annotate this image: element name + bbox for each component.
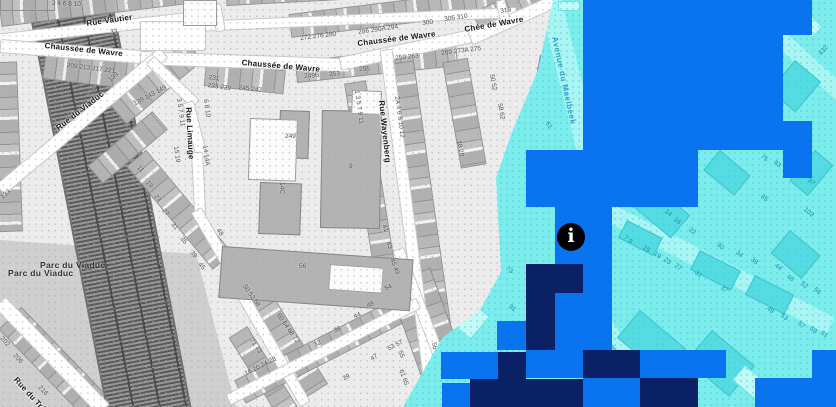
flood-risk-tile-very-high [526, 293, 555, 350]
flood-risk-tile-high [583, 378, 640, 407]
flood-risk-tile-high [755, 378, 836, 407]
map-canvas[interactable]: Rue VautierChaussée de WavreChaussée de … [0, 0, 836, 407]
flood-risk-tile-very-high [470, 379, 583, 407]
flood-risk-tile-high [783, 121, 812, 178]
flood-risk-tile-high [583, 35, 783, 150]
flood-risk-tile-high [526, 350, 583, 378]
flood-risk-tile-high [812, 350, 836, 378]
flood-risk-tile-high [441, 352, 498, 379]
info-icon: i [567, 227, 574, 246]
flood-risk-tile-high [555, 293, 612, 321]
flood-risk-tile-very-high [640, 378, 698, 407]
flood-risk-tile-high [555, 321, 612, 350]
flood-risk-tile-very-high [526, 264, 583, 293]
flood-risk-tile-high [583, 0, 812, 35]
flood-risk-tile-very-high [583, 350, 640, 378]
info-marker[interactable]: i [557, 223, 585, 251]
flood-risk-tile-high [497, 321, 526, 350]
flood-risk-tile-high [526, 150, 698, 207]
flood-overlay-layer [0, 0, 836, 407]
flood-risk-tile-high [640, 350, 726, 378]
flood-risk-tile-high [442, 383, 470, 407]
flood-risk-tile-high [583, 264, 612, 293]
flood-risk-tile-very-high [498, 352, 526, 379]
